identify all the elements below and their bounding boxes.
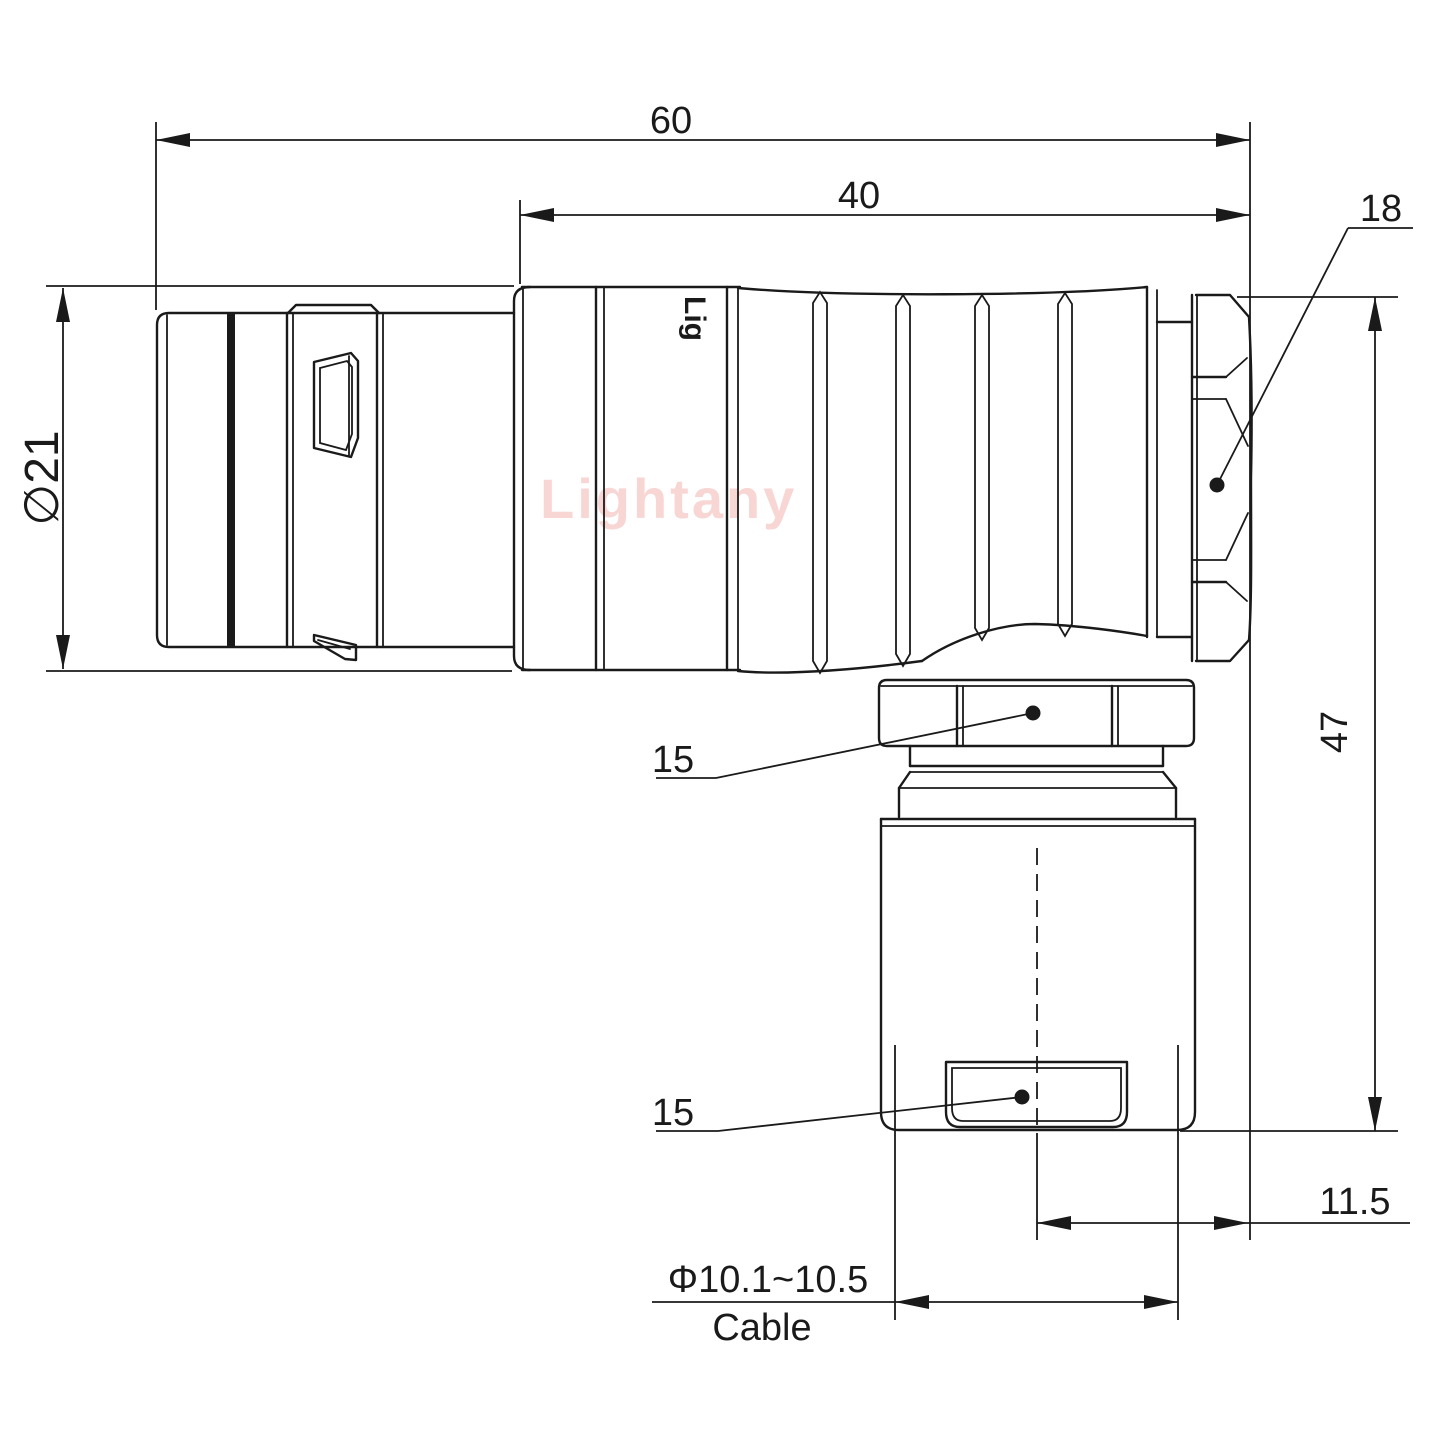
dim-nut-size-label: 18 [1360, 188, 1402, 230]
dim-total-height-label: 47 [1314, 711, 1356, 753]
dimension-cable: Φ10.1~10.5 Cable [652, 1045, 1178, 1349]
knurl-band [1058, 293, 1072, 636]
cable-word-label: Cable [712, 1307, 811, 1349]
watermark-text: Lightany [540, 467, 797, 530]
dimension-11-5: 11.5 [1037, 1133, 1410, 1240]
brand-partial-text: Lig [678, 296, 711, 341]
hex-nut-end [1157, 295, 1252, 661]
dim-shell-diameter-label: ∅21 [16, 430, 69, 525]
drawing-sheet: Lightany [0, 0, 1440, 1440]
connector-drawing-canvas: Lightany [0, 0, 1440, 1440]
leader-18: 18 [1210, 188, 1414, 493]
dimension-dia21: ∅21 [16, 286, 514, 671]
plug-latch [314, 353, 358, 457]
dim-clamp-hex-label: 15 [652, 1092, 694, 1134]
dim-rear-length-label: 40 [838, 175, 880, 217]
dim-cable-offset-label: 11.5 [1319, 1181, 1390, 1223]
dim-coupling-hex-label: 15 [652, 739, 694, 781]
knurl-band [896, 295, 910, 666]
knurl-band [975, 295, 989, 640]
cable-gland [881, 746, 1195, 1131]
knurl-band [813, 292, 827, 673]
leader-15-coupling: 15 [652, 706, 1041, 782]
dim-overall-length-label: 60 [650, 100, 692, 142]
knurl-bands [813, 292, 1072, 673]
dimension-40: 40 [520, 175, 1250, 284]
dim-cable-diameter-label: Φ10.1~10.5 [668, 1259, 868, 1301]
dimension-47: 47 [1180, 297, 1398, 1131]
plug-band [227, 313, 235, 647]
plug-body [157, 305, 514, 660]
